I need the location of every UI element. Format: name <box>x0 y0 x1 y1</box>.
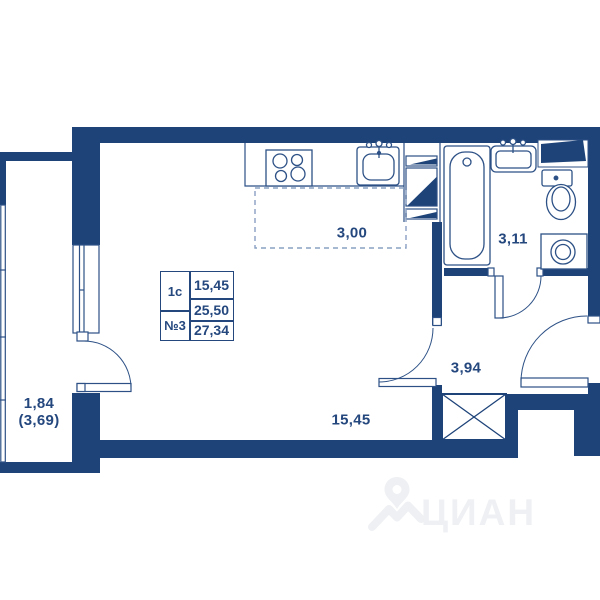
wall-right-below-door <box>588 383 600 395</box>
unit-type: 1с <box>161 272 189 310</box>
shaft-box <box>442 394 506 440</box>
vent-shaft-icon <box>538 140 588 167</box>
wall-right-upper <box>588 143 600 323</box>
kitchen-dimension-label: 3,00 <box>337 225 367 242</box>
room-door <box>379 318 441 387</box>
balcony-dimension-label: 1,84 (3,69) <box>19 395 60 429</box>
map-pin-icon <box>372 477 421 527</box>
room-dimension-label: 15,45 <box>331 412 370 429</box>
unit-total-area: 27,34 <box>190 321 233 339</box>
toilet-icon <box>542 170 576 220</box>
wall-divider-lower <box>432 385 442 440</box>
balcony-area-full: (3,69) <box>19 412 60 429</box>
window <box>73 245 99 341</box>
balcony-area: 1,84 <box>19 395 60 412</box>
wall-bottom <box>72 440 518 458</box>
kitchen-cabinet-icon <box>406 156 437 219</box>
bathroom-dimension-label: 3,11 <box>498 231 528 248</box>
stove-icon <box>266 150 312 186</box>
wall-divider-upper <box>432 222 442 325</box>
wall-right-stub <box>574 410 600 456</box>
bathroom-door <box>488 268 543 318</box>
unit-number: №3 <box>161 311 189 339</box>
floor-plan: 3,00 3,11 3,94 15,45 1,84 (3,69) 1с №3 1… <box>0 0 600 600</box>
wall-balcony-left-solid <box>0 161 6 205</box>
wall-left-lower <box>72 393 100 473</box>
wall-bathroom-bottom-left <box>444 268 492 276</box>
balcony-door <box>77 341 131 392</box>
washing-machine-icon <box>541 234 587 269</box>
wall-entrance <box>506 394 600 410</box>
bathtub-icon <box>444 146 490 265</box>
washbasin-icon <box>491 139 536 173</box>
kitchen-sink-icon <box>357 141 399 186</box>
unit-area-without-balcony: 25,50 <box>190 299 233 320</box>
wall-balcony-bottom <box>0 462 100 473</box>
kitchen-zone-dashed <box>255 188 406 248</box>
unit-info-table: 1с №3 15,45 25,50 27,34 <box>160 271 234 341</box>
cian-watermark: ЦИАН <box>421 492 536 534</box>
wall-balcony-top <box>0 152 72 161</box>
entrance-door <box>521 316 600 387</box>
wall-left-upper <box>72 127 100 245</box>
balcony-glazing <box>0 205 6 462</box>
hallway-dimension-label: 3,94 <box>451 360 481 377</box>
unit-living-area: 15,45 <box>190 272 233 298</box>
